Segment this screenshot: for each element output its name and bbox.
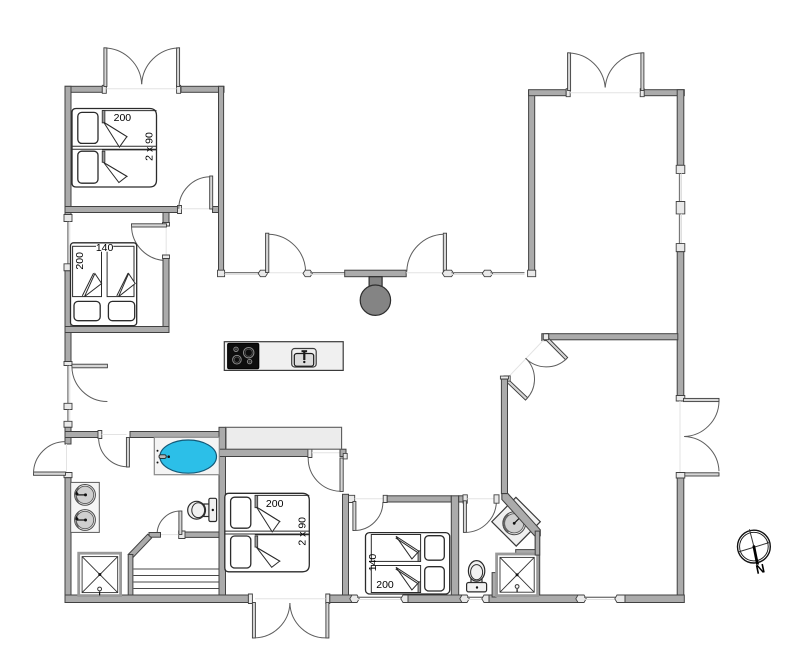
svg-text:200: 200 [74, 252, 86, 270]
svg-text:N: N [754, 561, 766, 577]
svg-text:140: 140 [367, 554, 379, 572]
svg-text:200: 200 [376, 579, 394, 591]
svg-text:2 x 90: 2 x 90 [296, 517, 308, 546]
svg-text:200: 200 [266, 498, 284, 510]
svg-text:200: 200 [114, 112, 132, 124]
svg-text:140: 140 [96, 242, 114, 254]
svg-text:2 x 90: 2 x 90 [144, 132, 156, 161]
